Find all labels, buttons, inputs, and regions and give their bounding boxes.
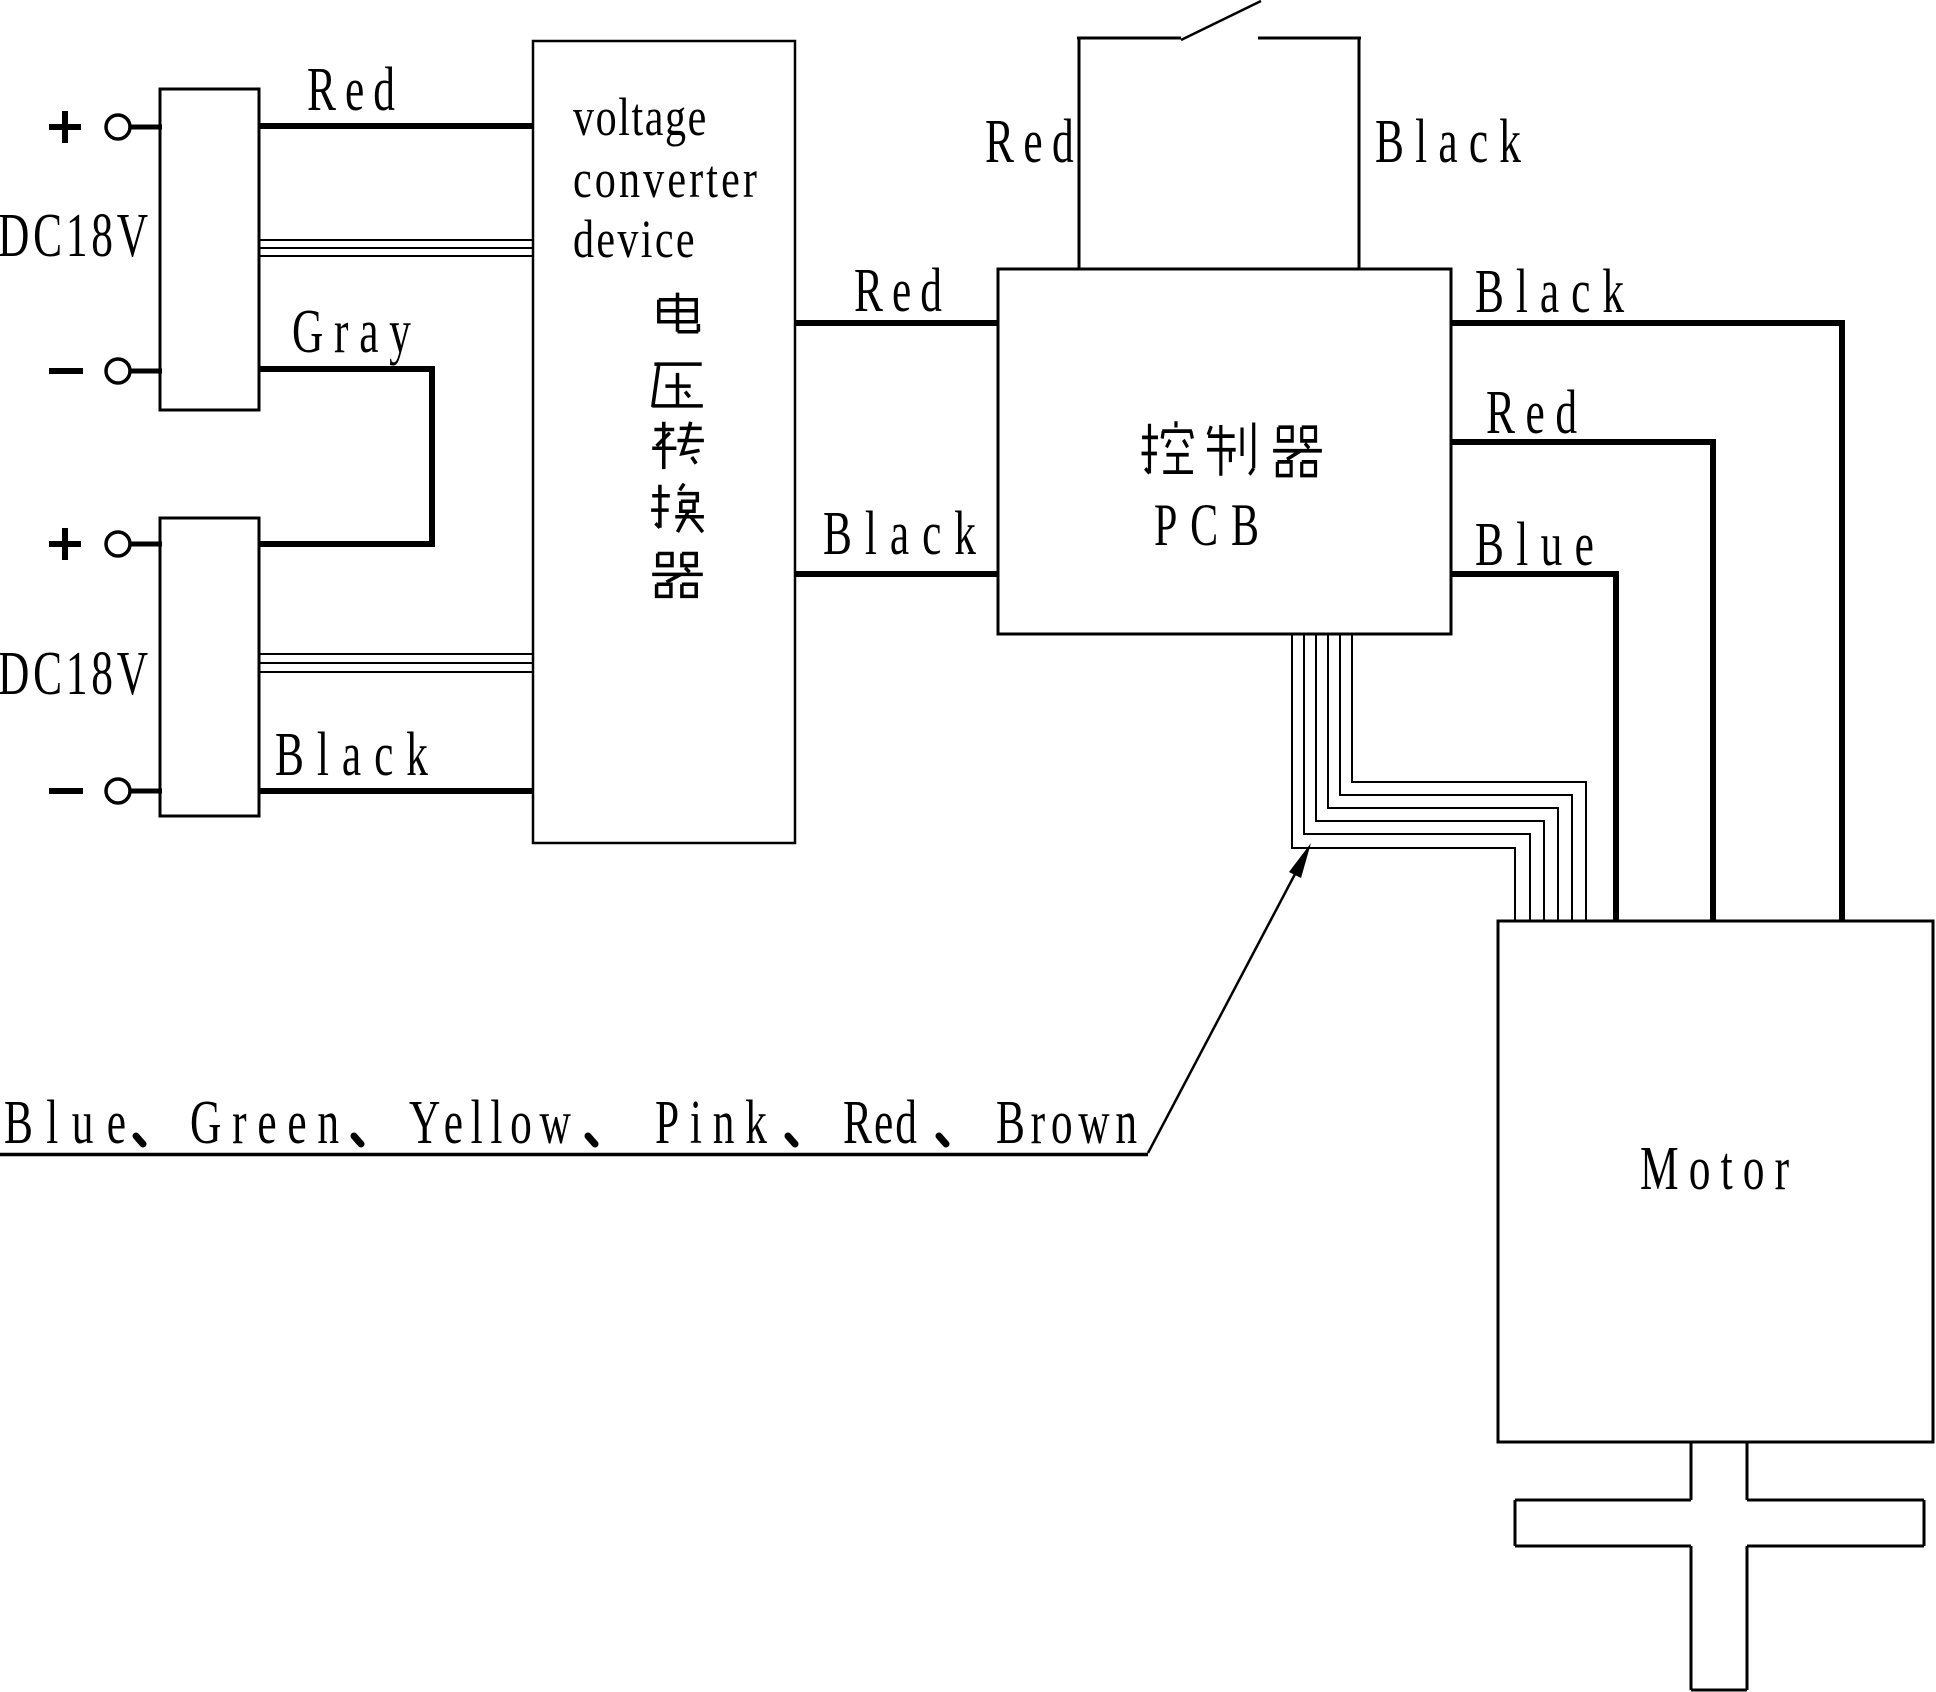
svg-text:Black: Black	[823, 498, 989, 568]
svg-text:Green: Green	[190, 1087, 350, 1157]
svg-text:converter: converter	[573, 150, 760, 209]
svg-text:voltage: voltage	[573, 88, 708, 147]
svg-text:Black: Black	[1475, 256, 1636, 326]
svg-text:Black: Black	[275, 719, 441, 789]
svg-text:Gray: Gray	[292, 296, 422, 366]
svg-text:PCB: PCB	[1154, 493, 1272, 559]
svg-text:Brown: Brown	[996, 1087, 1143, 1157]
svg-text:Red: Red	[985, 106, 1083, 176]
svg-text:Black: Black	[1375, 106, 1532, 176]
svg-text:DC18V: DC18V	[0, 200, 152, 270]
svg-text:DC18V: DC18V	[0, 638, 152, 708]
svg-text:Blue: Blue	[1475, 509, 1606, 579]
svg-text:Red: Red	[843, 1087, 919, 1157]
svg-text:Yellow: Yellow	[409, 1087, 579, 1157]
svg-text:Red: Red	[1486, 377, 1588, 447]
svg-text:Pink: Pink	[655, 1087, 778, 1157]
svg-text:Motor: Motor	[1640, 1133, 1799, 1203]
svg-text:Red: Red	[854, 255, 951, 325]
svg-text:device: device	[573, 210, 697, 269]
svg-text:Blue: Blue	[4, 1087, 139, 1157]
svg-text:Red: Red	[307, 54, 404, 124]
